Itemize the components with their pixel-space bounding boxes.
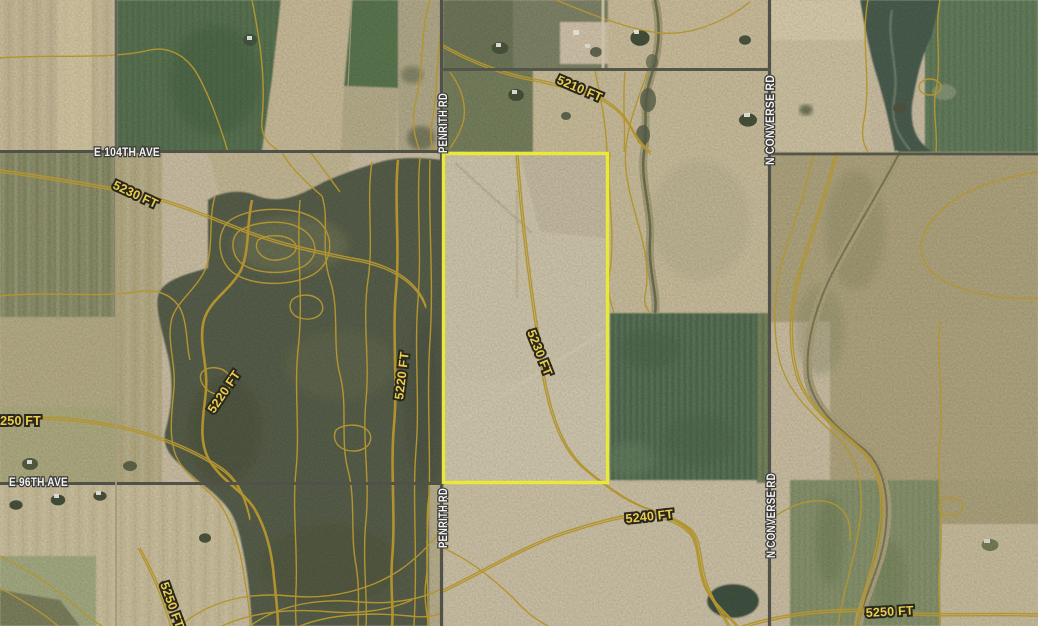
svg-text:E 96TH AVE: E 96TH AVE xyxy=(9,475,68,489)
svg-text:PENRITH RD: PENRITH RD xyxy=(436,93,450,153)
svg-text:N CONVERSE RD: N CONVERSE RD xyxy=(763,75,777,165)
svg-text:5250 FT: 5250 FT xyxy=(865,603,914,619)
svg-text:PENRITH RD: PENRITH RD xyxy=(436,488,450,548)
svg-text:5250 FT: 5250 FT xyxy=(0,414,41,428)
svg-text:N CONVERSE RD: N CONVERSE RD xyxy=(764,473,778,558)
svg-text:E 104TH AVE: E 104TH AVE xyxy=(94,145,160,159)
